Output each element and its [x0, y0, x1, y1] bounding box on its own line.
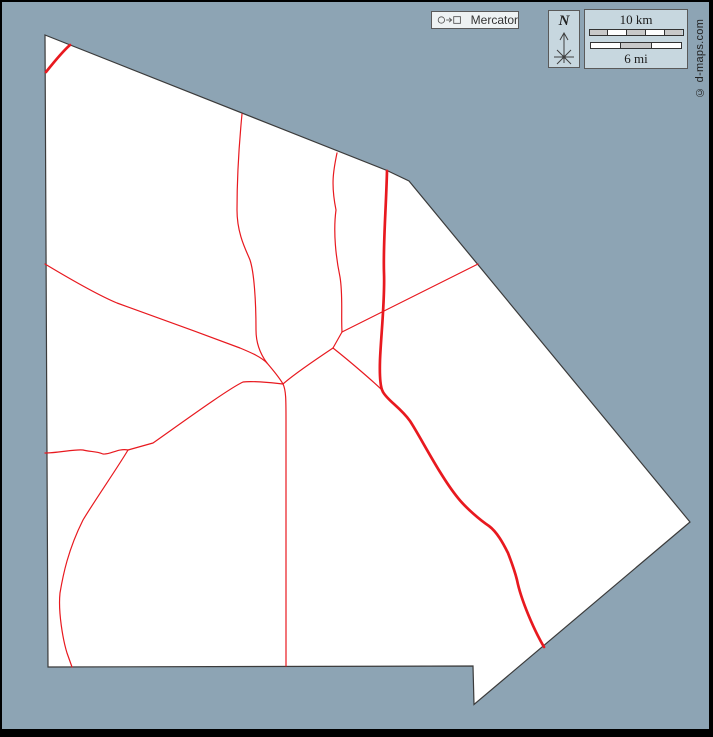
frame-border-top: [0, 0, 713, 2]
compass-north-label: N: [549, 13, 579, 30]
frame-border-left: [0, 0, 2, 737]
map-svg: [0, 0, 713, 737]
frame-border-bottom: [0, 729, 713, 737]
projection-badge: Mercator: [431, 11, 519, 29]
scale-km-label: 10 km: [585, 13, 687, 26]
projection-label: Mercator: [471, 14, 518, 26]
copyright-credit: © d-maps.com: [694, 8, 706, 98]
scale-segment: [651, 43, 681, 48]
north-arrow-icon: [551, 30, 577, 66]
county-outline: [45, 35, 690, 705]
scale-mi-bar: [590, 42, 682, 49]
compass-box: N: [548, 10, 580, 68]
scale-segment: [607, 30, 626, 35]
scale-segment: [626, 30, 645, 35]
map-canvas: Mercator N 10 km 6 mi © d-maps.com: [0, 0, 713, 737]
scale-segment: [645, 30, 664, 35]
frame-border-right: [709, 0, 713, 737]
scale-segment: [591, 43, 620, 48]
projection-transform-icon: [437, 14, 466, 26]
scale-segment: [590, 30, 608, 35]
scale-segment: [620, 43, 650, 48]
scale-mi-label: 6 mi: [585, 52, 687, 65]
scale-km-bar: [589, 29, 684, 36]
scale-bar-box: 10 km 6 mi: [584, 9, 688, 69]
scale-segment: [664, 30, 683, 35]
